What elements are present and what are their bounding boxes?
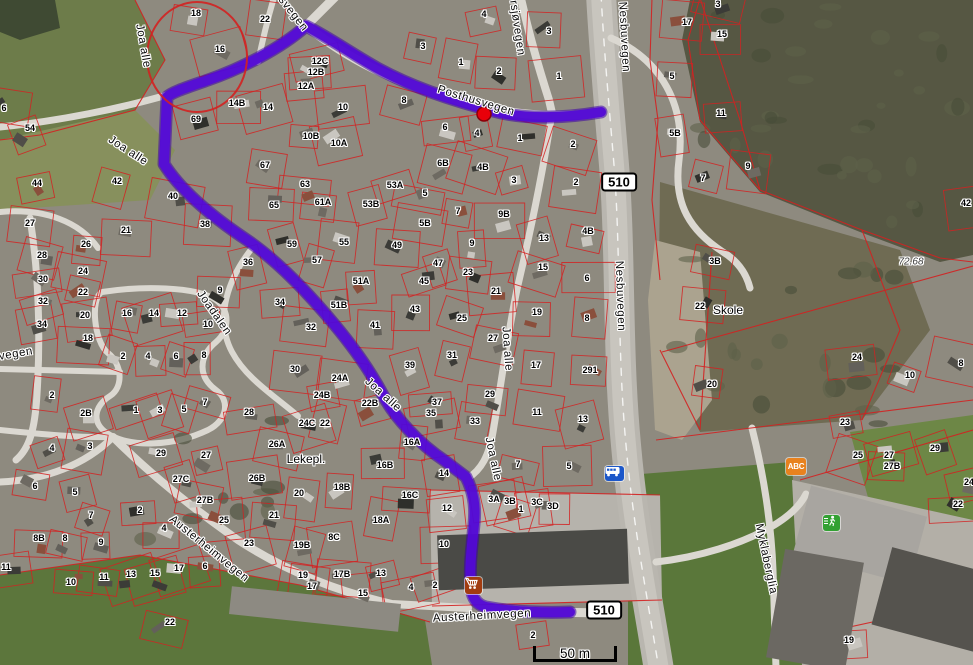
route-marker[interactable]	[477, 107, 491, 121]
aerial-map-canvas	[0, 0, 973, 665]
cart-glyph	[465, 577, 478, 590]
scale-bar-label: 50 m	[560, 646, 590, 661]
sports-facility-icon[interactable]	[823, 515, 840, 531]
abc-kindergarten-icon[interactable]: ABC	[786, 458, 806, 475]
route-shield-label: 510	[593, 603, 615, 618]
route-510-shield-north: 510	[601, 173, 637, 192]
shopping-cart-icon[interactable]	[465, 577, 482, 594]
bus-stop-icon[interactable]	[605, 466, 624, 481]
route-510-shield-south: 510	[586, 601, 622, 620]
map-viewport[interactable]: 18221612C12B12A14B146910B544442406763656…	[0, 0, 973, 665]
scale-bar: 50 m	[533, 640, 617, 662]
bus-glyph	[605, 466, 620, 477]
abc-icon-label: ABC	[788, 462, 804, 471]
route-shield-label: 510	[608, 175, 630, 190]
runner-glyph	[823, 515, 836, 527]
